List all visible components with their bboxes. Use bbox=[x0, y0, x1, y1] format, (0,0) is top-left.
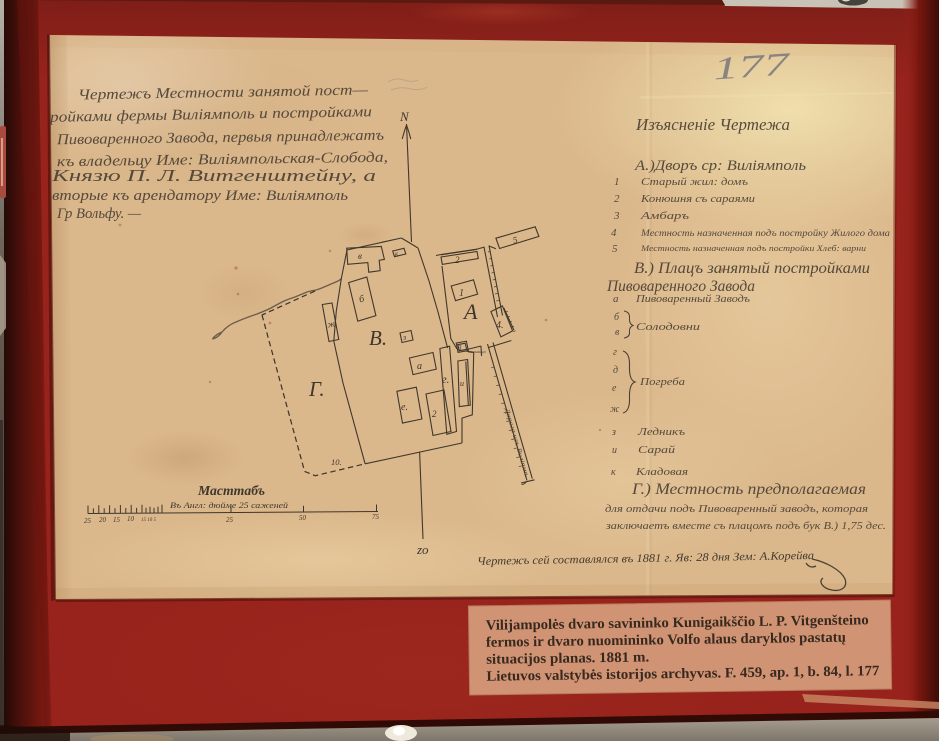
svg-text:25: 25 bbox=[84, 517, 92, 525]
svg-text:2: 2 bbox=[614, 193, 620, 205]
svg-text:а: а bbox=[613, 293, 619, 305]
svg-text:Местность назначенная подъ пос: Местность назначенная подъ постройку Жил… bbox=[640, 228, 891, 238]
svg-text:Конюшня съ сараями: Конюшня съ сараями bbox=[640, 193, 756, 205]
svg-text:10: 10 bbox=[127, 515, 135, 523]
svg-text:15 10 5: 15 10 5 bbox=[141, 518, 157, 523]
svg-text:N: N bbox=[399, 109, 410, 124]
svg-text:и: и bbox=[612, 445, 617, 456]
svg-text:е.: е. bbox=[401, 402, 408, 413]
svg-text:20: 20 bbox=[99, 516, 107, 524]
svg-text:15: 15 bbox=[113, 516, 121, 524]
svg-text:Кладовая: Кладовая bbox=[635, 466, 688, 478]
svg-text:к: к bbox=[611, 467, 616, 478]
svg-text:2: 2 bbox=[455, 255, 460, 265]
svg-text:г.: г. bbox=[442, 372, 450, 386]
svg-text:в: в bbox=[615, 327, 620, 338]
svg-text:177: 177 bbox=[712, 45, 793, 86]
svg-text:е: е bbox=[612, 383, 617, 394]
svg-text:а: а bbox=[417, 361, 422, 372]
svg-text:Изъясненiе Чертежа: Изъясненiе Чертежа bbox=[635, 115, 790, 134]
svg-text:1: 1 bbox=[614, 176, 620, 188]
svg-text:10.: 10. bbox=[331, 457, 342, 467]
svg-text:Ледникъ: Ледникъ bbox=[637, 426, 686, 438]
svg-text:50: 50 bbox=[299, 514, 307, 522]
svg-text:Солодовни: Солодовни bbox=[636, 321, 701, 333]
svg-text:Масттабъ: Масттабъ bbox=[197, 484, 265, 499]
svg-text:4.: 4. bbox=[496, 320, 504, 331]
svg-text:вторые къ арендатору Име: Вилi: вторые къ арендатору Име: Вилiямполь bbox=[52, 188, 348, 204]
svg-text:В.) Плацъ занятый постройками: В.) Плацъ занятый постройками bbox=[634, 260, 870, 277]
svg-text:В.: В. bbox=[369, 326, 387, 350]
svg-text:Погреба: Погреба bbox=[639, 376, 686, 388]
svg-text:Амбаръ: Амбаръ bbox=[640, 210, 690, 222]
svg-text:4: 4 bbox=[611, 227, 617, 239]
svg-text:д: д bbox=[613, 365, 618, 376]
svg-text:и: и bbox=[460, 379, 464, 388]
svg-text:Въ Англ: дюйме 25 саженей: Въ Англ: дюйме 25 саженей bbox=[170, 500, 289, 510]
svg-text:5: 5 bbox=[612, 243, 618, 255]
svg-text:Сарай: Сарай bbox=[638, 444, 676, 456]
svg-text:1: 1 bbox=[459, 288, 464, 299]
svg-text:з: з bbox=[611, 427, 616, 438]
svg-text:Пивоваренный Заводъ: Пивоваренный Заводъ bbox=[635, 293, 750, 305]
svg-text:заключаетъ вместе съ плацомъ п: заключаетъ вместе съ плацомъ подъ бук В.… bbox=[605, 521, 886, 532]
svg-text:situacijos planas. 1881 m.: situacijos planas. 1881 m. bbox=[486, 649, 649, 667]
svg-text:Местность назначенная подъ пос: Местность назначенная подъ постройки Хле… bbox=[640, 243, 866, 253]
svg-text:Гр Вольфу. —: Гр Вольфу. — bbox=[56, 206, 142, 222]
svg-text:Князю П. Л. Витгенштейну, а: Князю П. Л. Витгенштейну, а bbox=[50, 166, 376, 185]
svg-text:з: з bbox=[402, 333, 406, 342]
svg-text:75: 75 bbox=[372, 513, 380, 521]
svg-text:Г.) Местность предполагаемая: Г.) Местность предполагаемая bbox=[631, 481, 866, 498]
svg-text:zо: zо bbox=[416, 542, 429, 557]
svg-text:ж: ж bbox=[610, 404, 620, 415]
svg-text:А.)Дворъ ср: Вилiямполь: А.)Дворъ ср: Вилiямполь bbox=[634, 158, 806, 174]
svg-text:3: 3 bbox=[457, 344, 462, 352]
svg-text:Г.: Г. bbox=[308, 377, 325, 401]
svg-text:для отдачи подъ Пивоваренный з: для отдачи подъ Пивоваренный заводъ, кот… bbox=[605, 504, 868, 515]
svg-text:в: в bbox=[358, 251, 362, 261]
svg-text:г: г bbox=[613, 347, 617, 358]
svg-text:2: 2 bbox=[432, 409, 437, 419]
svg-text:А: А bbox=[462, 299, 478, 324]
svg-text:мельница: мельница bbox=[467, 349, 487, 354]
svg-text:3: 3 bbox=[613, 210, 620, 222]
svg-text:25: 25 bbox=[226, 516, 234, 524]
svg-text:Старый жил: домъ: Старый жил: домъ bbox=[641, 176, 748, 188]
